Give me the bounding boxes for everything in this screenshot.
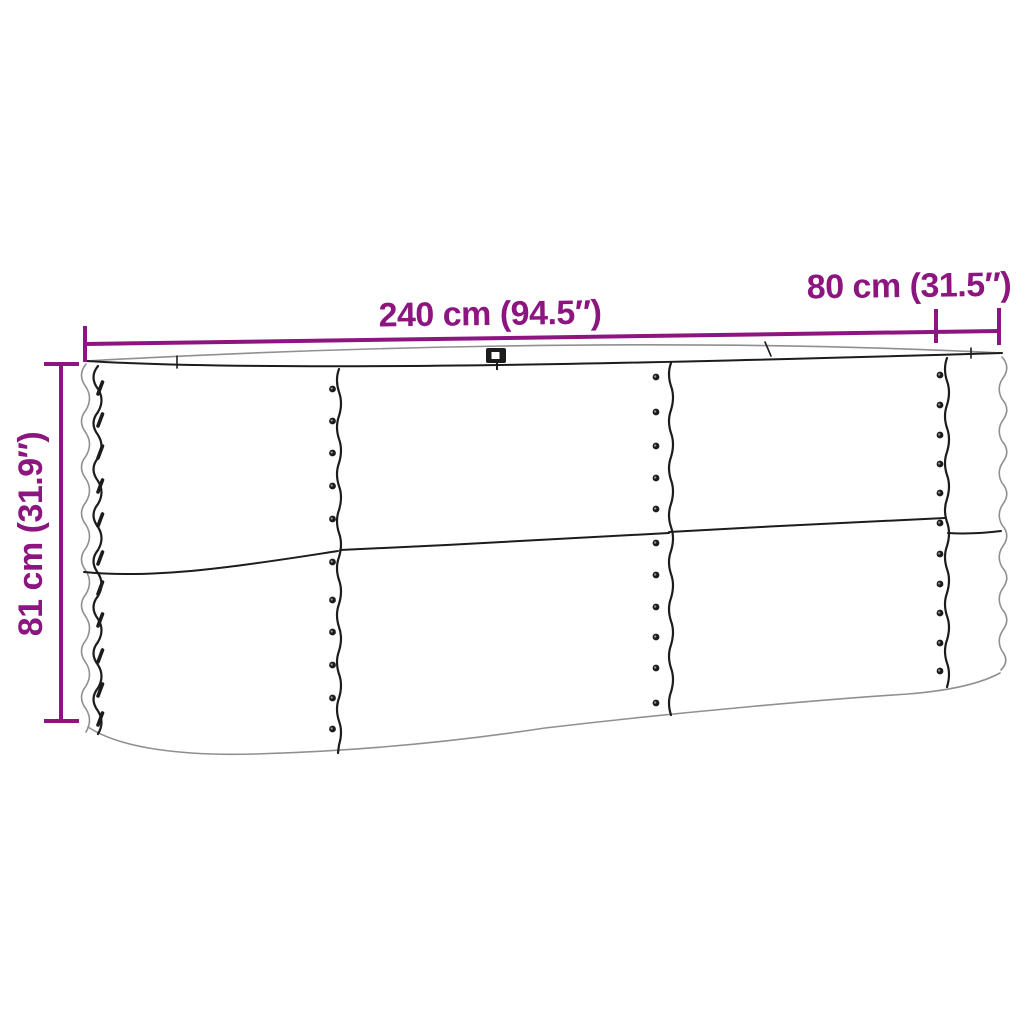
right-corrugated-edge — [999, 357, 1007, 670]
rim-back-edge — [86, 345, 1002, 361]
rim-clip-notch — [492, 352, 500, 359]
height-dimension-label: 81 cm (31.9″) — [12, 432, 50, 636]
planter-drawing — [82, 342, 1007, 754]
length-dimension-label: 240 cm (94.5″) — [378, 293, 601, 334]
width-dimension-label: 80 cm (31.5″) — [806, 266, 1011, 307]
horizontal-seam-right — [948, 531, 1001, 533]
bottom-edge — [88, 673, 1000, 754]
seam-rivets — [329, 372, 943, 733]
planter-soft-edges — [82, 345, 1007, 754]
planter-dark-edges — [84, 342, 1002, 753]
panel-seam-2 — [669, 363, 673, 715]
panel-seam-3 — [945, 358, 949, 687]
dimension-lines — [44, 308, 999, 721]
rim-seam-tick-middle — [765, 342, 771, 356]
panel-seam-1 — [337, 369, 341, 753]
horizontal-seam-mid-right — [669, 518, 945, 532]
rim-clip — [486, 348, 506, 370]
horizontal-seam-left — [84, 551, 338, 574]
horizontal-seam-mid-left — [340, 533, 669, 550]
diagram-svg: 240 cm (94.5″) 80 cm (31.5″) 81 cm (31.9… — [0, 0, 1024, 1024]
length-dimension-line — [85, 331, 999, 344]
garden-bed-dimension-diagram: 240 cm (94.5″) 80 cm (31.5″) 81 cm (31.9… — [0, 0, 1024, 1024]
left-corrugated-outer-edge — [82, 364, 90, 732]
